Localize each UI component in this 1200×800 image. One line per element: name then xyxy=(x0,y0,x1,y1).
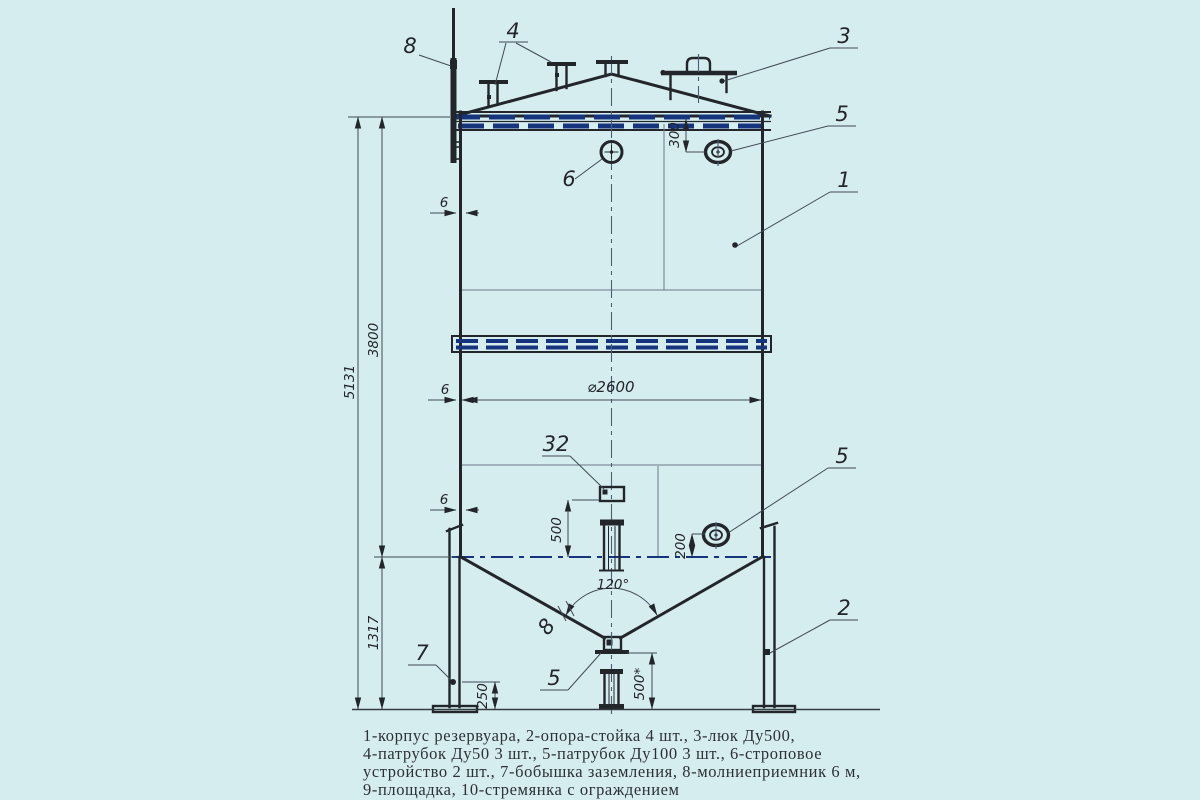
lightning-rod xyxy=(450,8,457,163)
dim-wall-thk-3: 6 xyxy=(440,492,449,508)
nozzle-du100-mid xyxy=(704,522,729,549)
legend-line-4: 9-площадка, 10-стремянка с ограждением xyxy=(363,780,680,799)
callout-lightning-rod: 8 xyxy=(403,34,416,58)
legend-block: 1-корпус резервуара, 2-опора-стойка 4 шт… xyxy=(363,726,861,799)
callout-body: 1 xyxy=(837,168,850,192)
wall-thickness-1: 6 xyxy=(430,195,479,213)
dim-diameter: ⌀2600 xyxy=(587,378,634,396)
drawing-canvas: 5131 3800 1317 300 ⌀2600 6 6 6 xyxy=(0,0,1200,800)
tank-drawing: 5131 3800 1317 300 ⌀2600 6 6 6 xyxy=(0,0,1200,800)
callout-manhole: 3 xyxy=(837,24,850,48)
dim-outlet-height: 500* xyxy=(632,667,648,700)
callout-labels: 8 4 3 5 1 6 32 5 2 xyxy=(403,19,858,690)
nozzle-du100-top xyxy=(706,139,731,166)
callout-sling: 6 xyxy=(562,167,575,191)
callout-item32: 32 xyxy=(543,432,570,456)
dim-bottom-height: 1317 xyxy=(366,615,382,650)
dim-wall-thk-2: 6 xyxy=(441,382,450,398)
callout-ground-boss: 7 xyxy=(415,641,429,665)
dim-cone-angle: 120° xyxy=(597,577,630,593)
dimension-lines: 5131 3800 1317 300 ⌀2600 6 6 6 xyxy=(342,117,761,709)
wall-thickness-3: 6 xyxy=(430,492,479,510)
legend-line-1: 1-корпус резервуара, 2-опора-стойка 4 шт… xyxy=(363,726,795,745)
callout-cone-thickness: 8 xyxy=(533,614,560,639)
legend-line-3: устройство 2 шт., 7-бобышка заземления, … xyxy=(363,762,861,781)
callout-nozzle-bottom: 5 xyxy=(547,666,560,690)
manhole-du500 xyxy=(660,54,737,103)
callout-roof-nozzles: 4 xyxy=(506,19,519,43)
dim-boss-height: 250 xyxy=(475,683,491,709)
callout-nozzle-top: 5 xyxy=(835,102,848,126)
dim-top-offset: 300 xyxy=(667,122,683,148)
dim-side-offset: 200 xyxy=(673,533,689,559)
callout-nozzle-mid: 5 xyxy=(835,444,848,468)
dim-overall-height: 5131 xyxy=(342,365,358,399)
dim-mid-offset: 500 xyxy=(549,517,565,543)
dim-shell-height: 3800 xyxy=(366,323,382,357)
support-leg-right xyxy=(753,523,795,712)
callout-support: 2 xyxy=(837,596,850,620)
dim-wall-thk-1: 6 xyxy=(440,195,449,211)
legend-line-2: 4-патрубок Ду50 3 шт., 5-патрубок Ду100 … xyxy=(363,744,822,763)
wall-thickness-2: 6 xyxy=(428,382,479,400)
